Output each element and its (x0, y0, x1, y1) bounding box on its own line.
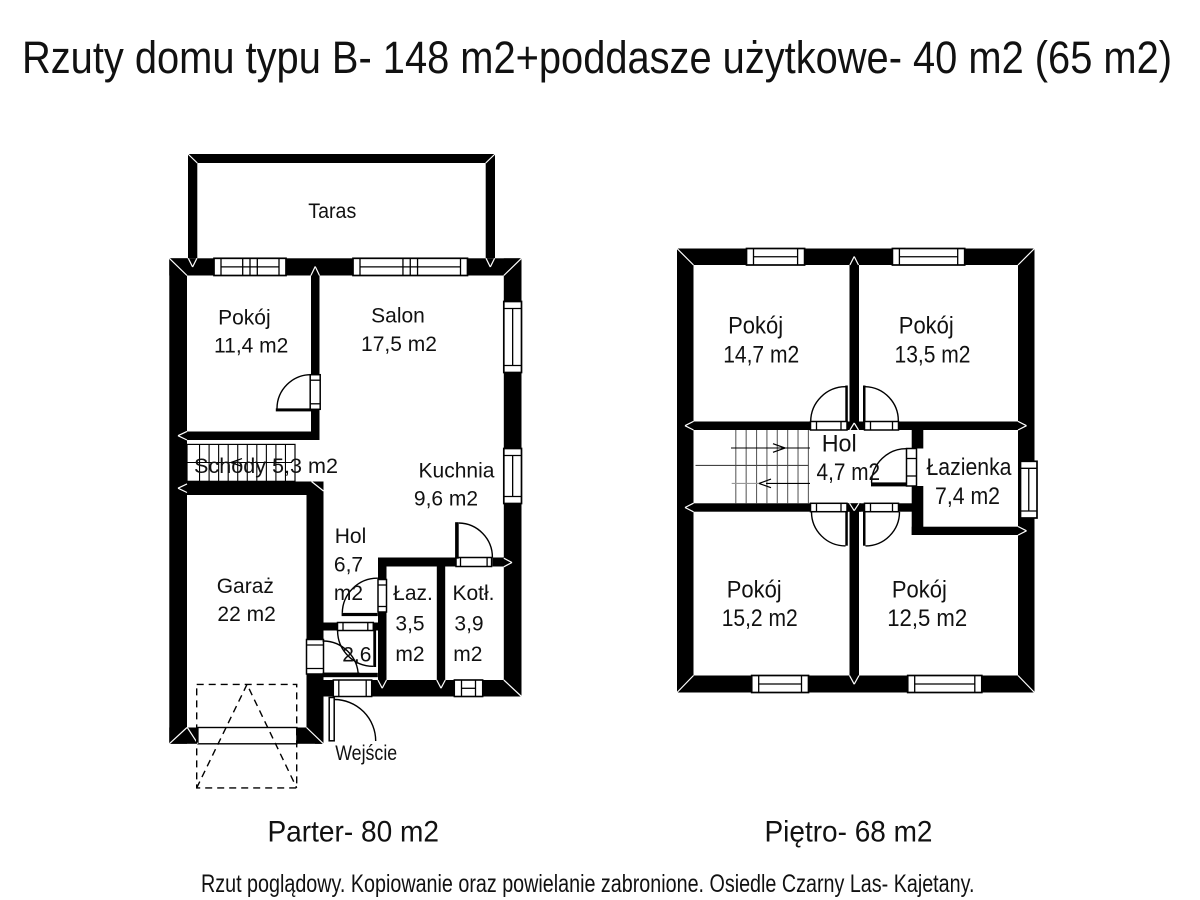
svg-text:7,4 m2: 7,4 m2 (935, 483, 1000, 510)
svg-text:Kotł.: Kotł. (452, 582, 494, 605)
svg-text:Kuchnia: Kuchnia (419, 460, 495, 483)
svg-text:Hol: Hol (822, 430, 857, 457)
svg-text:Piętro- 68 m2: Piętro- 68 m2 (765, 816, 933, 849)
svg-text:12,5 m2: 12,5 m2 (887, 605, 967, 632)
svg-text:Pokój: Pokój (728, 313, 783, 340)
svg-text:Pokój: Pokój (892, 577, 947, 604)
svg-text:Pokój: Pokój (899, 313, 954, 340)
svg-text:Taras: Taras (308, 200, 356, 223)
svg-text:14,7 m2: 14,7 m2 (723, 341, 799, 368)
svg-text:Łazienka: Łazienka (927, 454, 1013, 481)
svg-text:m2: m2 (334, 582, 363, 605)
svg-text:m2: m2 (453, 643, 482, 666)
svg-text:Pokój: Pokój (218, 306, 271, 329)
svg-text:2,6: 2,6 (342, 644, 371, 667)
svg-text:13,5 m2: 13,5 m2 (895, 341, 971, 368)
svg-text:6,7: 6,7 (334, 554, 363, 577)
svg-text:3,5: 3,5 (395, 613, 424, 636)
svg-text:3,9: 3,9 (454, 613, 483, 636)
svg-text:Rzut poglądowy. Kopiowanie ora: Rzut poglądowy. Kopiowanie oraz powielan… (201, 870, 975, 898)
svg-text:Wejście: Wejście (335, 742, 397, 765)
svg-text:Łaz.: Łaz. (393, 582, 433, 605)
svg-text:Salon: Salon (371, 304, 425, 327)
svg-text:Rzuty domu typu B- 148 m2+podd: Rzuty domu typu B- 148 m2+poddasze użytk… (22, 32, 1172, 83)
svg-text:15,2 m2: 15,2 m2 (722, 605, 798, 632)
svg-text:Hol: Hol (335, 525, 367, 548)
svg-text:22 m2: 22 m2 (217, 603, 275, 626)
svg-text:Schody 5,3 m2: Schody 5,3 m2 (194, 454, 338, 478)
svg-text:m2: m2 (395, 643, 424, 666)
svg-text:Garaż: Garaż (217, 575, 274, 598)
svg-text:11,4 m2: 11,4 m2 (214, 335, 288, 358)
svg-text:4,7 m2: 4,7 m2 (817, 459, 881, 486)
svg-text:Parter- 80 m2: Parter- 80 m2 (267, 816, 439, 849)
svg-text:17,5 m2: 17,5 m2 (361, 333, 437, 356)
svg-text:Pokój: Pokój (727, 577, 782, 604)
svg-text:9,6 m2: 9,6 m2 (414, 488, 478, 511)
